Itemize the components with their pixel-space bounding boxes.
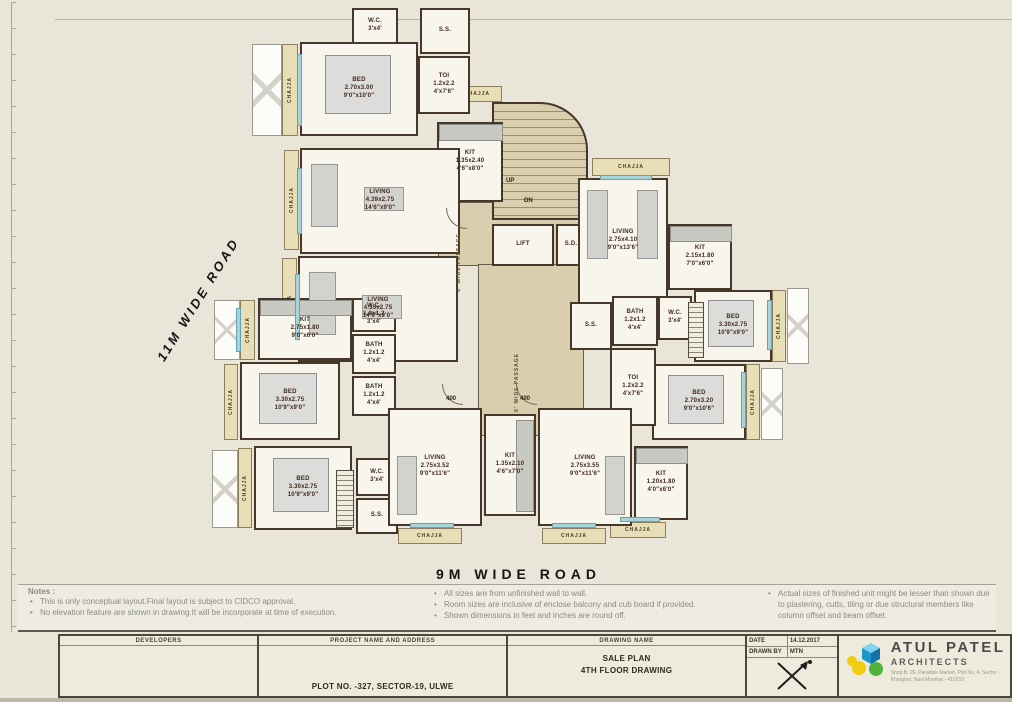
window (620, 517, 660, 522)
room-bed-right-1: BED 3.30x2.75 10'9"x9'0" (694, 290, 772, 362)
room-label: W.C. 1.0x1.2 3'x4' (363, 303, 384, 326)
balcony (252, 44, 282, 136)
room-label: TOI 1.2x2.2 4'x7'6" (433, 73, 454, 96)
sofa-furniture (637, 190, 658, 259)
room-label: S.S. (439, 27, 451, 35)
left-edge-ruler (11, 2, 16, 632)
firm-address-line1: Shop B. 26, Paradise Market, Plot No. 4,… (891, 670, 1006, 677)
room-kitchen-left: KIT 2.75x1.80 9'0"x6'0" (258, 298, 352, 360)
lift-label: LIFT (516, 241, 529, 249)
room-label: LIVING 2.75x3.55 9'0"x11'6" (570, 455, 600, 478)
flat-tag: 400 (446, 396, 456, 402)
chajja-label: CHAJJA (287, 77, 293, 103)
drawing-sheet: UP DN LIFT S.D. 6' WIDE PASSAGE 6' WIDE … (0, 0, 1012, 702)
chajja-strip: CHAJJA (542, 528, 606, 544)
drawn-by-value: MTN (788, 647, 837, 657)
passage-text: 6' WIDE PASSAGE (514, 353, 520, 412)
notes-column-1: Notes : This is only conceptual layout.F… (28, 587, 424, 619)
room-kitchen-right: KIT 2.15x1.80 7'0"x6'0" (668, 224, 732, 290)
date-row: DATE 14.12.2017 (747, 636, 837, 647)
window (741, 372, 746, 428)
room-label: KIT 1.20x1.80 4'0"x6'0" (647, 471, 676, 494)
balcony (761, 368, 783, 440)
stair-run (688, 302, 704, 358)
room-living-bottom-2: LIVING 2.75x3.55 9'0"x11'6" (538, 408, 632, 526)
drawing-name-line2: 4TH FLOOR DRAWING (508, 666, 745, 675)
firm-address-line2: Kharghar, Navi Mumbai - 410210 (891, 677, 1006, 684)
room-label: S.S. (585, 322, 597, 330)
room-label: KIT 1.35x2.10 4'6"x7'0" (496, 453, 525, 476)
chajja-label: CHAJJA (289, 187, 295, 213)
chajja-strip: CHAJJA (224, 364, 238, 440)
chajja-strip: CHAJJA (592, 158, 670, 176)
chajja-strip: CHAJJA (746, 364, 760, 440)
architect-text-block: ATUL PATEL ARCHITECTS Shop B. 26, Paradi… (891, 640, 1006, 684)
room-label: BATH 1.2x1.2 4'x4' (363, 384, 384, 407)
stair-run (336, 470, 354, 528)
notes-heading: Notes : (28, 587, 424, 596)
balcony (787, 288, 809, 364)
room-living-right: LIVING 2.75x4.10 9'0"x13'6" (578, 178, 668, 304)
kitchen-counter (636, 448, 688, 464)
notes-column-3: Actual sizes of finished unit might be l… (766, 589, 996, 621)
room-label: KIT 1.35x2.40 4'6"x8'0" (456, 150, 485, 173)
date-label: DATE (747, 636, 788, 646)
chajja-strip: CHAJJA (240, 300, 255, 360)
project-value: PLOT NO. -327, SECTOR-19, ULWE (259, 682, 506, 691)
note-item: No elevation feature are shown in drawin… (28, 608, 424, 619)
kitchen-counter (439, 124, 503, 141)
room-wc-top: W.C. 3'x4' (352, 8, 398, 44)
north-arrow-icon (748, 659, 836, 693)
passage-text: 6' WIDE PASSAGE (456, 233, 462, 292)
chajja-strip: CHAJJA (238, 448, 252, 528)
window (410, 523, 454, 528)
architect-logo-icon (845, 640, 887, 678)
window (767, 300, 772, 350)
drawing-name-cell: DRAWING NAME SALE PLAN 4TH FLOOR DRAWING (508, 636, 747, 696)
balcony (212, 450, 238, 528)
service-duct-label: S.D. (565, 241, 577, 249)
drawn-by-row: DRAWN BY MTN (747, 647, 837, 658)
room-label: BED 3.30x2.75 10'9"x9'0" (288, 476, 319, 499)
chajja-label: CHAJJA (245, 317, 251, 343)
room-label: KIT 2.75x1.80 9'0"x6'0" (291, 317, 320, 340)
window (600, 175, 652, 180)
room-bath-mid: BATH 1.2x1.2 4'x4' (612, 296, 658, 346)
note-item: All sizes are from unfinished wall to wa… (432, 589, 762, 600)
room-bed-top-left: BED 2.70x3.00 9'0"x10'0" (300, 42, 418, 136)
room-label: W.C. 3'x4' (370, 469, 384, 485)
project-cell: PROJECT NAME AND ADDRESS PLOT NO. -327, … (259, 636, 508, 696)
room-label: BED 2.70x3.20 9'0"x10'6" (684, 390, 715, 413)
room-label: TOI 1.2x2.2 4'x7'6" (622, 375, 643, 398)
room-ss-mid: S.S. (570, 302, 612, 350)
room-label: BATH 1.2x1.2 4'x4' (363, 342, 384, 365)
firm-name: ATUL PATEL (891, 640, 1006, 655)
sheet-frame-line (55, 19, 1012, 20)
chajja-label: CHAJJA (618, 164, 644, 170)
room-label: BATH 1.2x1.2 4'x4' (624, 309, 645, 332)
drawing-name-header: DRAWING NAME (508, 636, 745, 646)
staircase: UP DN (492, 102, 588, 220)
chajja-label: CHAJJA (228, 389, 234, 415)
chajja-strip: CHAJJA (398, 528, 462, 544)
kitchen-counter (260, 300, 352, 316)
chajja-strip: CHAJJA (282, 44, 298, 136)
room-label: BED 3.30x2.75 10'9"x9'0" (718, 314, 749, 337)
scan-edge-shadow (0, 698, 1012, 702)
room-toilet-top-left: TOI 1.2x2.2 4'x7'6" (418, 56, 470, 114)
room-bath-left-1: BATH 1.2x1.2 4'x4' (352, 334, 396, 374)
room-label: S.S. (371, 512, 383, 520)
chajja-label: CHAJJA (561, 533, 587, 539)
kitchen-counter (670, 226, 732, 242)
drawn-by-label: DRAWN BY (747, 647, 788, 657)
architect-cell: ATUL PATEL ARCHITECTS Shop B. 26, Paradi… (839, 636, 1010, 696)
stair-up-label: UP (506, 178, 514, 184)
firm-address: Shop B. 26, Paradise Market, Plot No. 4,… (891, 670, 1006, 684)
notes-section: Notes : This is only conceptual layout.F… (18, 584, 996, 632)
notes-column-2: All sizes are from unfinished wall to wa… (432, 589, 762, 621)
note-item: This is only conceptual layout.Final lay… (28, 597, 424, 608)
sofa-furniture (605, 456, 625, 515)
chajja-label: CHAJJA (776, 313, 782, 339)
window (297, 54, 302, 126)
note-item: Actual sizes of finished unit might be l… (766, 589, 996, 621)
date-north-cell: DATE 14.12.2017 DRAWN BY MTN (747, 636, 839, 696)
chajja-label: CHAJJA (242, 475, 248, 501)
project-header: PROJECT NAME AND ADDRESS (259, 636, 506, 646)
chajja-label: CHAJJA (625, 527, 651, 533)
chajja-label: CHAJJA (750, 389, 756, 415)
lift: LIFT (492, 224, 554, 266)
chajja-strip: CHAJJA (772, 290, 786, 362)
room-living-bottom-1: LIVING 2.75x3.52 9'0"x11'6" (388, 408, 482, 526)
room-label: LIVING 2.75x3.52 9'0"x11'6" (420, 455, 450, 478)
chajja-label: CHAJJA (417, 533, 443, 539)
passage-label-bottom: 6' WIDE PASSAGE (508, 328, 526, 436)
room-label: BED 3.30x2.75 10'9"x9'0" (275, 389, 306, 412)
sofa-furniture (311, 164, 338, 227)
room-wc-mid: W.C. 3'x4' (658, 296, 692, 340)
room-label: LIVING 2.75x4.10 9'0"x13'6" (608, 229, 639, 252)
firm-subtitle: ARCHITECTS (891, 657, 1006, 667)
developers-cell: DEVELOPERS (60, 636, 259, 696)
window (297, 168, 302, 234)
room-kitchen-bottom-right: KIT 1.20x1.80 4'0"x6'0" (634, 446, 688, 520)
room-label: LIVING 4.39x2.75 14'6"x9'0" (365, 189, 396, 212)
note-item: Shown dimensions in feet and inches are … (432, 611, 762, 622)
road-label-bottom: 9M WIDE ROAD (436, 566, 601, 582)
stair-down-label: DN (524, 198, 533, 204)
room-label: BED 2.70x3.00 9'0"x10'0" (344, 77, 375, 100)
flat-tag: 400 (520, 396, 530, 402)
sofa-furniture (587, 190, 608, 259)
note-item: Room sizes are inclusive of enclose balc… (432, 600, 762, 611)
room-label: W.C. 3'x4' (668, 310, 682, 326)
room-label: W.C. 3'x4' (368, 18, 382, 34)
room-living-1: LIVING 4.39x2.75 14'6"x9'0" (300, 148, 460, 254)
drawing-name-line1: SALE PLAN (508, 654, 745, 663)
date-value: 14.12.2017 (788, 636, 837, 646)
title-block: DEVELOPERS PROJECT NAME AND ADDRESS PLOT… (58, 634, 1012, 698)
sofa-furniture (397, 456, 417, 515)
room-bed-bottom-left-1: BED 3.30x2.75 10'9"x9'0" (240, 362, 340, 440)
window (236, 308, 241, 352)
developers-header: DEVELOPERS (60, 636, 257, 646)
room-label: KIT 2.15x1.80 7'0"x6'0" (686, 245, 715, 268)
room-bed-right-2: BED 2.70x3.20 9'0"x10'6" (652, 364, 746, 440)
room-ss-top: S.S. (420, 8, 470, 54)
window (552, 523, 596, 528)
